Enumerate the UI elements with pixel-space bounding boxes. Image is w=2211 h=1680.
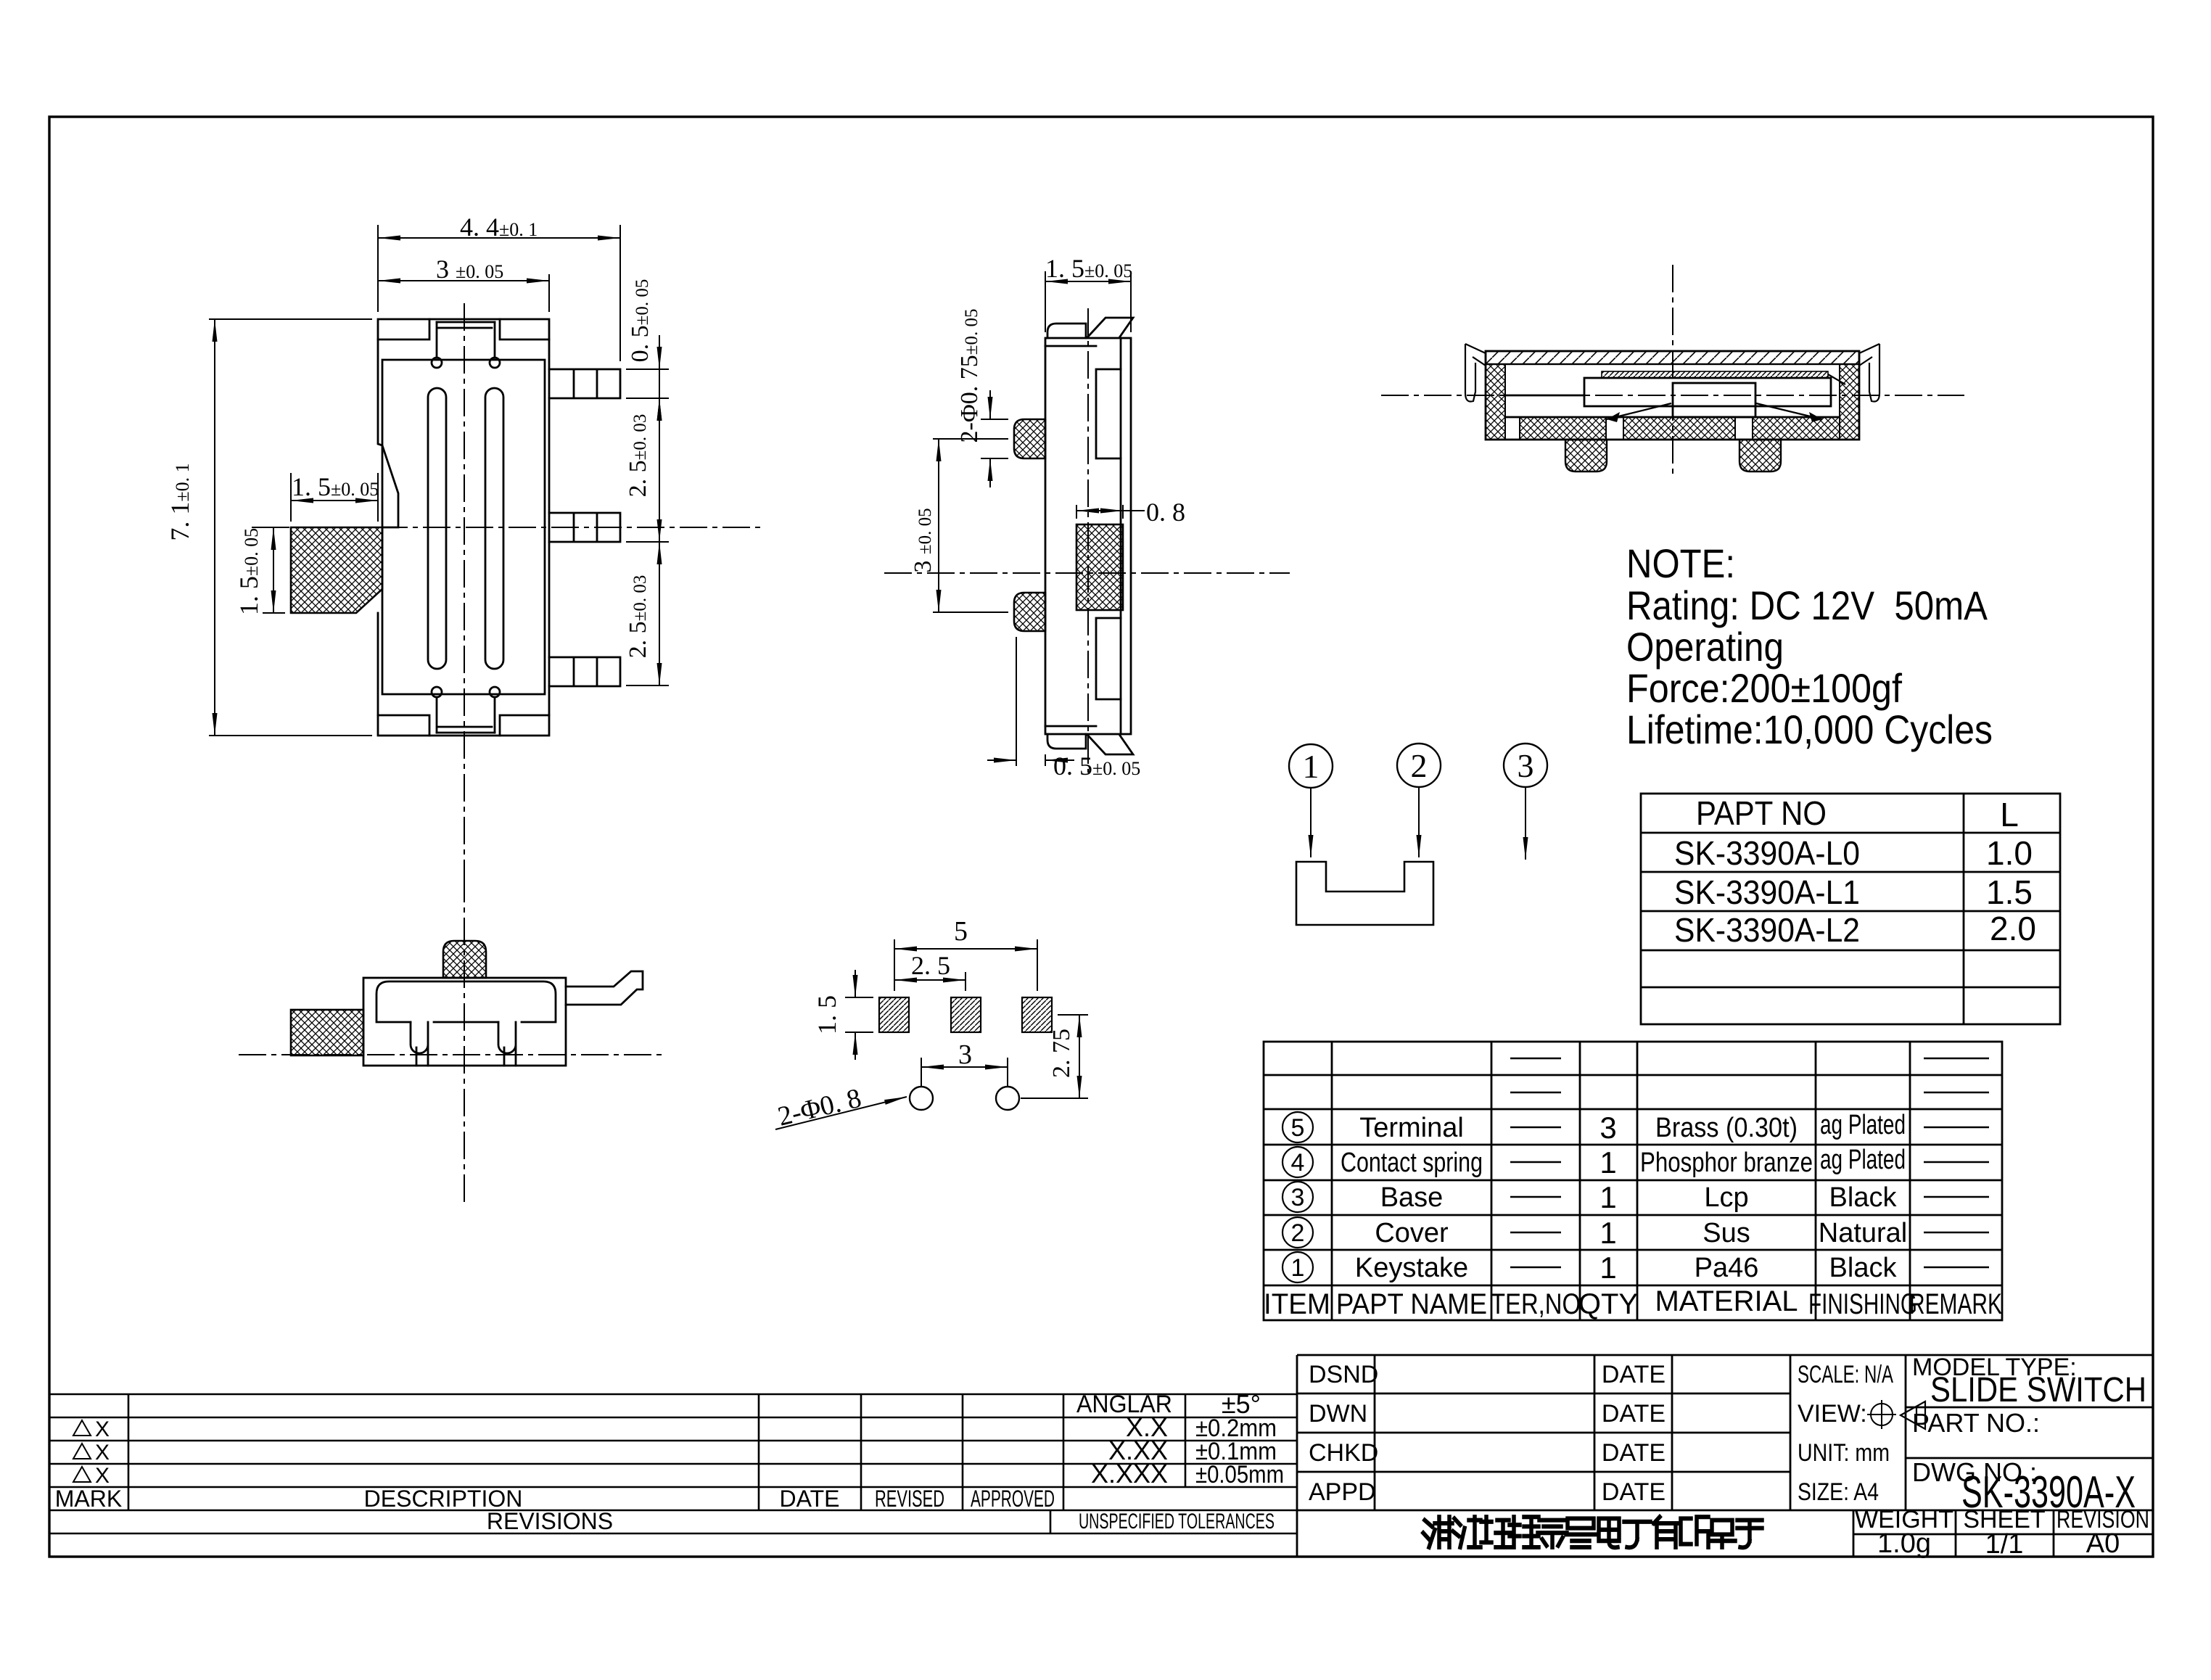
svg-text:APPD: APPD <box>1309 1478 1376 1506</box>
svg-text:A0: A0 <box>2086 1528 2120 1559</box>
svg-text:1.0: 1.0 <box>1986 834 2033 872</box>
svg-text:REMARK: REMARK <box>1909 1288 2002 1320</box>
svg-text:1: 1 <box>1599 1145 1616 1179</box>
svg-text:ag Plated: ag Plated <box>1820 1110 1906 1140</box>
svg-text:DATE: DATE <box>1602 1478 1666 1506</box>
svg-text:Terminal: Terminal <box>1359 1113 1464 1143</box>
svg-text:SIZE: A4: SIZE: A4 <box>1798 1478 1879 1506</box>
svg-text:Black: Black <box>1829 1182 1898 1213</box>
svg-text:PAPT NAME: PAPT NAME <box>1336 1288 1487 1320</box>
svg-text:DATE: DATE <box>1602 1400 1666 1428</box>
svg-text:ITEM: ITEM <box>1264 1288 1330 1320</box>
svg-text:Cover: Cover <box>1375 1218 1449 1248</box>
svg-text:SLIDE SWITCH: SLIDE SWITCH <box>1930 1371 2146 1409</box>
svg-text:ag Plated: ag Plated <box>1820 1145 1906 1175</box>
svg-text:REVISIONS: REVISIONS <box>487 1508 613 1534</box>
svg-text:3: 3 <box>958 1039 972 1070</box>
svg-text:Contact spring: Contact spring <box>1341 1148 1483 1178</box>
svg-text:Rating: DC 12V 50mA: Rating: DC 12V 50mA <box>1626 582 1988 628</box>
svg-text:1.5: 1.5 <box>1986 873 2033 911</box>
svg-text:SK-3390A-L0: SK-3390A-L0 <box>1674 834 1860 872</box>
svg-text:SK-3390A-L1: SK-3390A-L1 <box>1674 873 1860 911</box>
svg-text:FINISHING: FINISHING <box>1808 1288 1917 1320</box>
svg-text:Lifetime:10,000 Cycles: Lifetime:10,000 Cycles <box>1626 707 1993 752</box>
svg-text:PAPT NO: PAPT NO <box>1696 794 1827 832</box>
svg-text:Force:200±100gf: Force:200±100gf <box>1626 665 1902 711</box>
svg-text:DSND: DSND <box>1309 1361 1378 1388</box>
svg-text:MATERIAL: MATERIAL <box>1655 1285 1798 1317</box>
svg-text:2: 2 <box>1411 747 1428 784</box>
svg-text:Keystake: Keystake <box>1355 1253 1468 1283</box>
svg-text:3: 3 <box>1518 747 1534 784</box>
svg-text:1: 1 <box>1291 1254 1305 1282</box>
svg-text:1: 1 <box>1599 1180 1616 1214</box>
svg-text:3: 3 <box>1599 1111 1616 1145</box>
svg-text:2. 75: 2. 75 <box>1048 1029 1075 1078</box>
svg-text:1. 5: 1. 5 <box>812 995 841 1034</box>
svg-text:QTY: QTY <box>1578 1288 1638 1320</box>
svg-text:DWN: DWN <box>1309 1400 1367 1428</box>
svg-text:UNIT: mm: UNIT: mm <box>1798 1439 1890 1467</box>
svg-text:DATE: DATE <box>1602 1439 1666 1467</box>
svg-text:REVISED: REVISED <box>875 1486 944 1512</box>
svg-text:1: 1 <box>1599 1216 1616 1250</box>
svg-text:L: L <box>2000 796 2019 833</box>
svg-text:Brass (0.30t): Brass (0.30t) <box>1655 1113 1798 1143</box>
svg-text:5: 5 <box>954 916 968 947</box>
svg-text:DATE: DATE <box>1602 1361 1666 1388</box>
svg-text:2: 2 <box>1291 1219 1305 1247</box>
svg-text:X: X <box>95 1417 110 1441</box>
svg-text:±0.05mm: ±0.05mm <box>1195 1461 1284 1488</box>
svg-text:X: X <box>95 1441 110 1465</box>
svg-text:Lcp: Lcp <box>1704 1182 1748 1213</box>
svg-text:Phosphor branze: Phosphor branze <box>1640 1148 1813 1178</box>
svg-text:VIEW:: VIEW: <box>1798 1400 1867 1428</box>
svg-text:X.XXX: X.XXX <box>1091 1459 1168 1488</box>
svg-text:3: 3 <box>1291 1184 1305 1211</box>
svg-text:CHKD: CHKD <box>1309 1439 1378 1467</box>
svg-text:TER,NO: TER,NO <box>1491 1288 1581 1320</box>
svg-text:Pa46: Pa46 <box>1695 1253 1759 1283</box>
svg-text:UNSPECIFIED TOLERANCES: UNSPECIFIED TOLERANCES <box>1079 1510 1275 1533</box>
svg-text:2. 5: 2. 5 <box>911 951 950 980</box>
svg-text:Operating: Operating <box>1626 624 1784 670</box>
svg-text:PART NO.:: PART NO.: <box>1912 1408 2040 1438</box>
svg-text:4: 4 <box>1291 1149 1305 1177</box>
svg-text:SCALE: N/A: SCALE: N/A <box>1798 1361 1893 1388</box>
svg-text:2.0: 2.0 <box>1990 910 2036 947</box>
svg-text:1: 1 <box>1303 748 1319 785</box>
svg-text:Sus: Sus <box>1702 1218 1750 1248</box>
svg-text:Black: Black <box>1829 1253 1898 1283</box>
svg-text:0. 8: 0. 8 <box>1146 498 1185 527</box>
svg-text:1.0g: 1.0g <box>1877 1528 1931 1559</box>
svg-text:Natural: Natural <box>1819 1218 1908 1248</box>
svg-text:MARK: MARK <box>55 1486 122 1512</box>
svg-text:SK-3390A-L2: SK-3390A-L2 <box>1674 911 1860 949</box>
svg-text:NOTE:: NOTE: <box>1626 540 1735 586</box>
svg-text:1: 1 <box>1599 1251 1616 1285</box>
svg-text:DATE: DATE <box>780 1486 840 1512</box>
svg-text:APPROVED: APPROVED <box>971 1486 1055 1512</box>
svg-text:1/1: 1/1 <box>1985 1529 2024 1560</box>
svg-text:Base: Base <box>1380 1182 1444 1213</box>
svg-text:5: 5 <box>1291 1114 1305 1142</box>
svg-text:X: X <box>95 1464 110 1488</box>
